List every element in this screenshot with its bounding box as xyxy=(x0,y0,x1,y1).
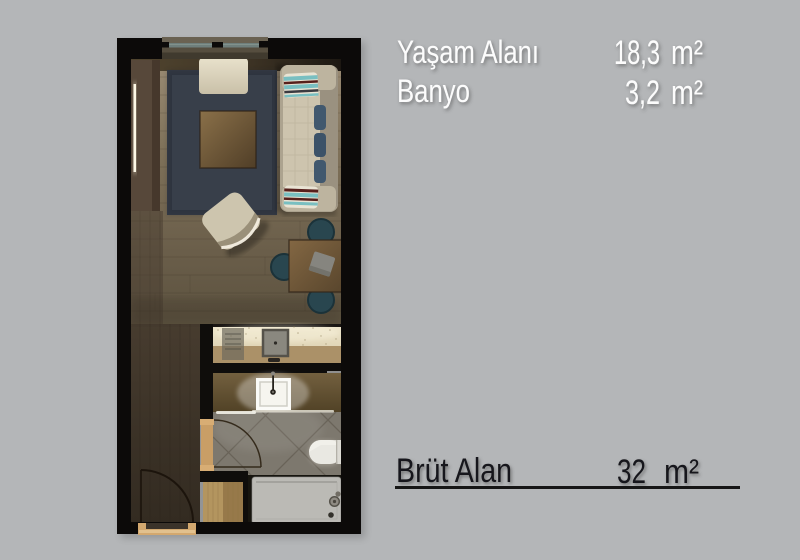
svg-text:m²: m² xyxy=(664,453,699,491)
svg-text:Brüt Alan: Brüt Alan xyxy=(396,452,512,490)
svg-text:Banyo: Banyo xyxy=(397,73,470,109)
svg-text:m²: m² xyxy=(671,74,703,112)
svg-text:18,3: 18,3 xyxy=(614,34,660,72)
svg-text:Yaşam Alanı: Yaşam Alanı xyxy=(397,34,539,70)
svg-text:3,2: 3,2 xyxy=(625,74,660,112)
svg-text:m²: m² xyxy=(671,34,703,72)
svg-text:32: 32 xyxy=(617,453,646,491)
